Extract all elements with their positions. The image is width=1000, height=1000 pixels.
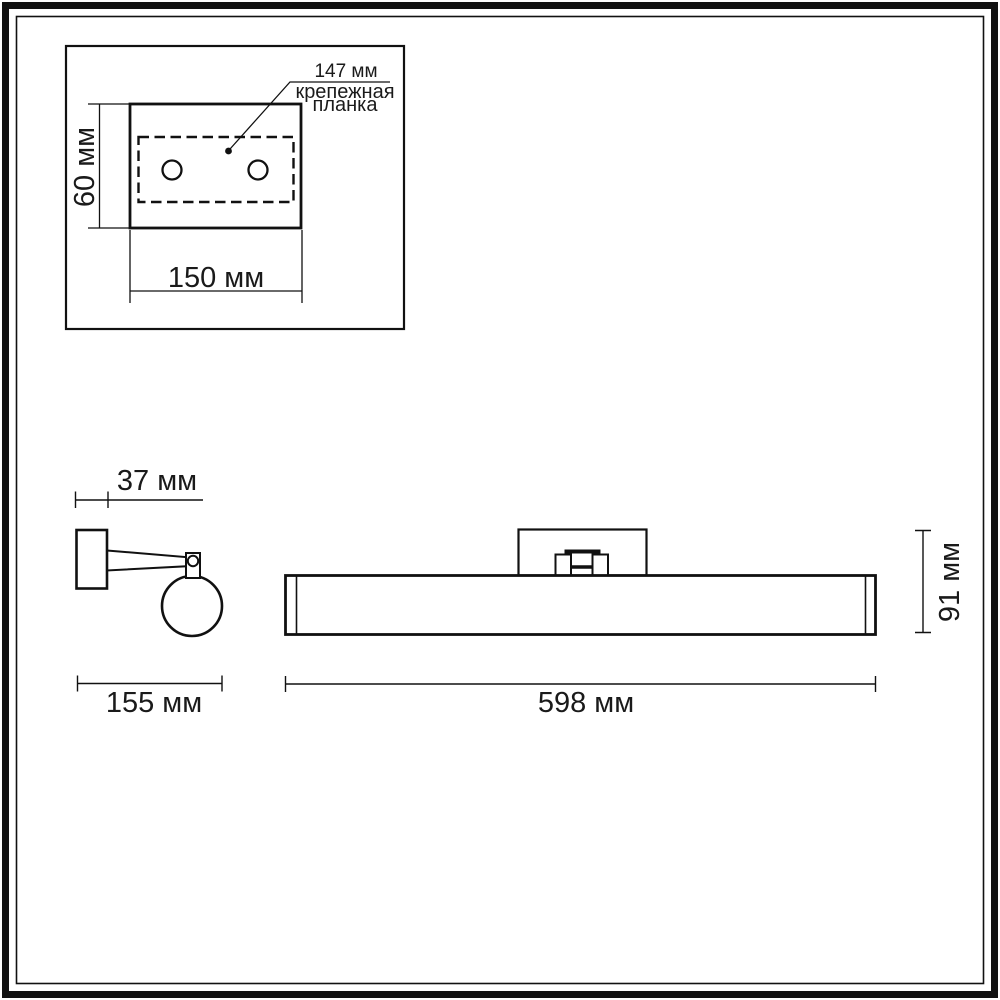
dimension-60mm-label: 60 мм — [69, 127, 101, 207]
hole-pitch-label: 147 мм — [314, 61, 377, 82]
dimension-60mm: 60 мм — [69, 104, 130, 228]
lamp-bar — [286, 576, 876, 635]
mounting-plate-body — [130, 104, 301, 228]
dimension-91mm-label: 91 мм — [934, 542, 966, 622]
lamp-arm — [107, 551, 191, 571]
knob-side-right — [593, 555, 609, 576]
wall-bracket-plate — [77, 530, 108, 589]
front-view: 91 мм 598 мм — [286, 530, 967, 720]
dimension-598mm: 598 мм — [286, 676, 876, 719]
side-view: 37 мм 155 мм — [75, 465, 223, 719]
dimension-155mm-label: 155 мм — [106, 687, 202, 719]
plate-name-line2: планка — [313, 94, 379, 116]
dimension-598mm-label: 598 мм — [538, 687, 634, 719]
drawing-canvas: 147 мм крепежная планка 60 мм 150 мм 37 … — [0, 0, 1000, 1000]
dimension-91mm-lines — [915, 531, 931, 633]
dimension-155mm: 155 мм — [77, 676, 223, 720]
dimension-91mm: 91 мм — [915, 531, 966, 633]
lamp-head — [162, 576, 222, 636]
pivot-joint — [188, 556, 198, 566]
knob-side-left — [556, 555, 572, 576]
dimension-150mm-label: 150 мм — [168, 262, 264, 294]
dimension-37mm: 37 мм — [75, 465, 203, 508]
technical-drawing: 147 мм крепежная планка 60 мм 150 мм 37 … — [0, 0, 1000, 1000]
dimension-150mm: 150 мм — [130, 230, 302, 303]
mounting-plate-inset: 147 мм крепежная планка 60 мм 150 мм — [66, 46, 404, 329]
dimension-37mm-label: 37 мм — [117, 465, 197, 497]
